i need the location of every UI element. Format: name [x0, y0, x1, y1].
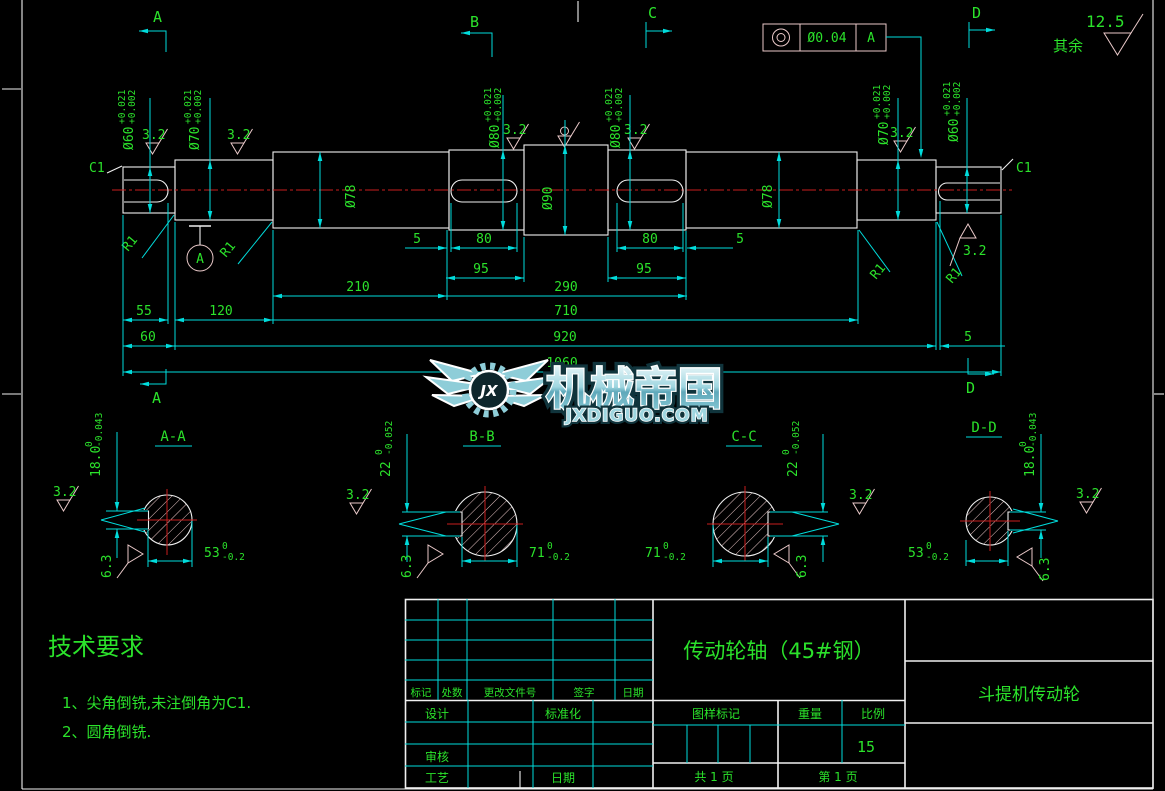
finish-value: 3.2: [890, 126, 913, 141]
dia-tol-low: +0.002: [493, 88, 504, 122]
fillet-label-2: R1: [218, 239, 240, 261]
dim-80-right: 80: [642, 232, 658, 247]
dim-60: 60: [140, 330, 156, 345]
geo-tol-datum: A: [867, 31, 875, 46]
dim-5-left: 5: [413, 232, 421, 247]
flat-value: 53: [908, 546, 924, 561]
diameter-dim-lines: [148, 95, 970, 235]
key-tol-low: -0.043: [1028, 413, 1039, 447]
flat-tol-up: 0: [222, 541, 228, 552]
dia-label-80-right: Ø80 +0.021 +0.002: [604, 87, 625, 148]
dia-value: Ø78: [761, 185, 776, 208]
title-block: 标记 处数 更改文件号 签字 日期 设计 标准化 审核 工艺 日期 图样标记 重…: [405, 599, 1153, 788]
tech-req-item-2: 2、圆角倒铣.: [62, 723, 151, 741]
section-title: B-B: [469, 429, 494, 445]
dim-95-left: 95: [473, 262, 489, 277]
watermark-logo-text: JX: [477, 382, 499, 400]
finish-value: 3.2: [53, 485, 76, 500]
key-tol-low: -0.052: [384, 421, 395, 455]
section-centerlines: [707, 486, 783, 561]
roughness-value: 12.5: [1086, 12, 1125, 31]
label-weight: 重量: [798, 707, 822, 721]
section-title: C-C: [731, 429, 756, 445]
rev-header-date: 日期: [623, 687, 644, 699]
tech-req-title: 技术要求: [48, 633, 144, 661]
dia-value: Ø60: [947, 119, 962, 142]
cut-letter-d-bottom: D: [966, 379, 975, 397]
dim-95-right: 95: [636, 262, 652, 277]
label-date: 日期: [551, 771, 575, 785]
dia-value: Ø80: [609, 125, 624, 148]
keyway-slots: [124, 180, 1000, 202]
dia-tol-low: +0.002: [952, 82, 963, 116]
keyway-width-dim: 22 0 -0.052: [770, 421, 828, 562]
key-tol-low: -0.052: [791, 421, 802, 455]
dim-55: 55: [136, 304, 152, 319]
flat-tol-up: 0: [663, 541, 669, 552]
keyway-width-dim: 18.0 0 -0.043: [1010, 413, 1046, 558]
cut-letter-a-bottom: A: [152, 389, 161, 407]
default-roughness: 12.5 其余: [1053, 12, 1143, 55]
flat-tol-low: -0.2: [663, 552, 686, 563]
flat-tol-up: 0: [926, 541, 932, 552]
flat-tol-low: -0.2: [222, 552, 245, 563]
length-dimensions: 5 80 80 5 95 95 210 290 55 120 710 60 92…: [123, 232, 1005, 374]
scale-value: 15: [857, 738, 875, 756]
finish-value: 3.2: [227, 128, 250, 143]
dia-tol-low: +0.002: [127, 90, 138, 124]
cut-letter-c-top: C: [648, 4, 657, 22]
finish-value: 6.3: [400, 555, 415, 578]
dia-value: Ø80: [488, 125, 503, 148]
section-title: D-D: [971, 420, 996, 436]
dia-tol-low: +0.002: [193, 90, 204, 124]
section-view-aa: 18.0 0 -0.043 53 0 -0.2 3.2 6.3 A-A: [53, 413, 245, 578]
dim-210: 210: [346, 280, 369, 295]
cad-sheet: 12.5 其余 Ø0.04 A A B C D A D: [0, 0, 1165, 791]
label-design: 设计: [425, 707, 449, 721]
rev-header-count: 处数: [442, 686, 463, 699]
watermark: JX 机械帝国 机械帝国 JXDIGUO.COM JXDIGUO.COM: [426, 360, 722, 426]
dia-label-60-left: Ø60 +0.021 +0.002: [117, 89, 138, 150]
key-width: 22: [786, 461, 801, 477]
dim-120: 120: [209, 304, 232, 319]
watermark-site: JXDIGUO.COM: [564, 406, 708, 426]
shaft-finish-marks: 3.2 3.2 3.2 3.2 3.2 3.2: [142, 122, 986, 266]
flat-tol-up: 0: [547, 541, 553, 552]
label-standardize: 标准化: [545, 707, 581, 721]
label-drawing-mark: 图样标记: [692, 706, 740, 721]
key-tol-low: -0.043: [94, 413, 105, 447]
tech-req-item-1: 1、尖角倒铣,未注倒角为C1.: [62, 694, 251, 712]
key-width: 18.0: [89, 446, 104, 477]
geo-tol-value: Ø0.04: [807, 31, 846, 46]
dim-5-end: 5: [964, 330, 972, 345]
dim-920: 920: [553, 330, 576, 345]
label-page-no: 第 1 页: [818, 770, 857, 784]
section-centerlines: [960, 491, 1020, 551]
chamfer-left-label: C1: [89, 161, 105, 176]
dia-tol-low: +0.002: [614, 88, 625, 122]
fillet-label-3: R1: [868, 261, 890, 283]
label-check: 审核: [425, 749, 449, 764]
keyway-width-dim: 22 0 -0.052: [374, 421, 460, 562]
dia-label-80-left: Ø80 +0.021 +0.002: [483, 87, 504, 148]
main-shaft-view: C1 C1 A R1 R1 R1 R1 3.2 3.2 3.2 3.2 3.2: [89, 81, 1032, 376]
dim-80-left: 80: [476, 232, 492, 247]
fillet-callouts: R1 R1 R1 R1: [120, 215, 966, 287]
project-name: 斗提机传动轮: [978, 685, 1080, 705]
dia-label-90: Ø90: [541, 187, 556, 210]
section-view-dd: 18.0 0 -0.043 53 0 -0.2 3.2 6.3 D-D: [908, 413, 1102, 581]
rev-header-sign: 签字: [574, 686, 595, 699]
finish-value: 3.2: [1076, 487, 1099, 502]
section-view-bb: 22 0 -0.052 71 0 -0.2 3.2 6.3 B-B: [346, 421, 570, 578]
label-total-pages: 共 1 页: [694, 770, 733, 784]
key-width: 22: [379, 461, 394, 477]
dia-label-60-right: Ø60 +0.021 +0.002: [942, 81, 963, 142]
flat-tol-low: -0.2: [926, 552, 949, 563]
rev-header-mark: 标记: [411, 687, 432, 699]
finish-value: 3.2: [624, 123, 647, 138]
dia-value: Ø60: [122, 127, 137, 150]
label-process: 工艺: [425, 771, 449, 785]
datum-target: A: [187, 226, 213, 271]
drawing-canvas: 12.5 其余 Ø0.04 A A B C D A D: [0, 0, 1165, 791]
section-centerlines: [447, 486, 523, 561]
finish-value: 3.2: [142, 128, 165, 143]
dim-710: 710: [554, 304, 577, 319]
dia-value: Ø78: [344, 185, 359, 208]
finish-value: 6.3: [1038, 558, 1053, 581]
finish-value: 3.2: [346, 488, 369, 503]
dia-label-70-right: Ø70 +0.021 +0.002: [872, 84, 893, 145]
dim-290: 290: [554, 280, 577, 295]
dia-label-78-right: Ø78: [761, 185, 776, 208]
surface-finish-any-icon: [558, 122, 580, 147]
dia-value: Ø90: [541, 187, 556, 210]
surface-finish-icon: [117, 545, 143, 578]
roughness-others-label: 其余: [1053, 37, 1083, 55]
tech-requirements: 技术要求 1、尖角倒铣,未注倒角为C1. 2、圆角倒铣.: [48, 633, 251, 741]
cut-letter-b-top: B: [470, 13, 479, 31]
surface-finish-icon: [417, 545, 443, 578]
finish-value: 3.2: [849, 488, 872, 503]
datum-letter: A: [196, 252, 204, 267]
concentricity-icon: [773, 29, 790, 46]
cut-letter-a-top: A: [153, 8, 162, 26]
dia-value: Ø70: [877, 122, 892, 145]
finish-value: 6.3: [795, 555, 810, 578]
fillet-label-4: R1: [944, 265, 966, 287]
flat-value: 53: [204, 546, 220, 561]
label-scale: 比例: [861, 707, 885, 721]
finish-value: 6.3: [100, 555, 115, 578]
rev-header-file: 更改文件号: [484, 686, 537, 699]
dia-label-70-left: Ø70 +0.021 +0.002: [183, 89, 204, 150]
dia-tol-low: +0.002: [882, 85, 893, 119]
title-block-grid: [405, 599, 905, 788]
section-view-cc: 22 0 -0.052 71 0 -0.2 3.2 6.3 C-C: [645, 421, 875, 578]
finish-value: 3.2: [963, 244, 986, 259]
cut-letter-d-top: D: [972, 4, 981, 22]
dia-value: Ø70: [188, 127, 203, 150]
finish-value: 3.2: [503, 123, 526, 138]
dia-label-78-left: Ø78: [344, 185, 359, 208]
flat-value: 71: [529, 546, 545, 561]
chamfer-right-leader: [1002, 159, 1013, 170]
part-name: 传动轮轴（45#钢）: [683, 639, 874, 663]
section-cut-marks: A B C D A D: [139, 4, 995, 407]
chamfer-left-leader: [107, 166, 122, 173]
watermark-logo-icon: JX: [426, 360, 552, 414]
section-title: A-A: [160, 429, 186, 445]
chamfer-right-label: C1: [1016, 161, 1032, 176]
keyway-width-dim: 18.0 0 -0.043: [84, 413, 148, 558]
flat-value: 71: [645, 546, 661, 561]
key-width: 18.0: [1023, 446, 1038, 477]
flat-tol-low: -0.2: [547, 552, 570, 563]
dim-5-right: 5: [736, 232, 744, 247]
